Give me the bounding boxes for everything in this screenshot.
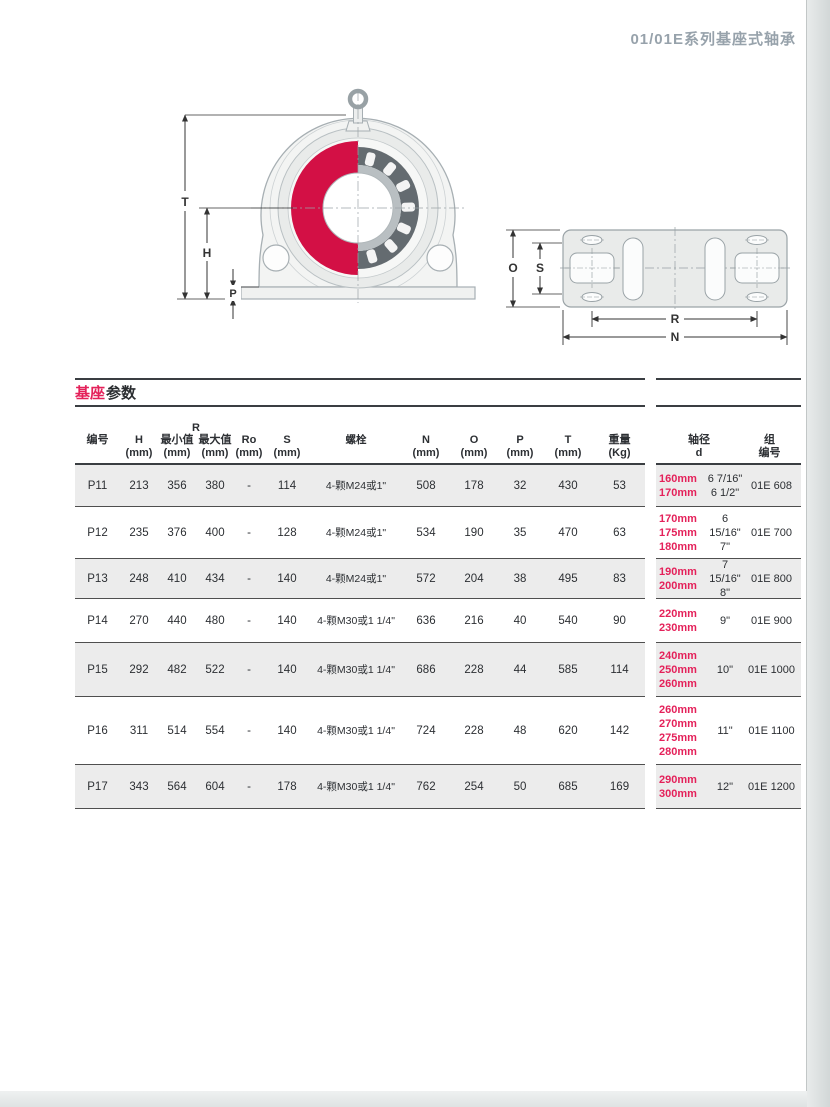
col-bolt: 螺栓 <box>346 434 367 447</box>
shaft-row: 240mm 250mm 260mm 10" 01E 1000 <box>656 643 801 697</box>
table-row: P17 343 564 604 - 178 4-颗M30或1 1/4" 762 … <box>75 765 645 809</box>
dim-label-o: O <box>508 261 517 275</box>
section-title-red: 基座 <box>75 382 105 403</box>
row-id: P15 <box>75 664 120 676</box>
dim-label-p: P <box>229 288 236 300</box>
shaft-row: 260mm 270mm 275mm 280mm 11" 01E 1100 <box>656 697 801 765</box>
row-id: P16 <box>75 725 120 737</box>
table-row: P14 270 440 480 - 140 4-颗M30或1 1/4" 636 … <box>75 599 645 643</box>
shaft-row: 190mm 200mm 7 15/16" 8" 01E 800 <box>656 559 801 599</box>
shaft-mm: 220mm 230mm <box>656 607 706 635</box>
shaft-inch: 10" <box>706 663 744 677</box>
shaft-diameter-table: 轴径 d 组 编号 160mm 170mm 6 7/16" 6 1/2" 01E… <box>656 378 801 809</box>
middle-slot-right <box>705 238 725 300</box>
col-r: R <box>192 422 200 434</box>
shaft-inch: 6 15/16" 7" <box>706 512 744 554</box>
col-ro: Ro <box>242 434 257 447</box>
spacer-band <box>656 380 801 405</box>
table-header-row: 编号 H(mm) R 最小值(mm) 最大值(mm) Ro(mm) S(mm) … <box>75 407 645 465</box>
col-r-group: R 最小值(mm) 最大值(mm) <box>158 422 234 460</box>
col-shaft-diameter: 轴径 <box>688 434 710 447</box>
shaft-mm: 240mm 250mm 260mm <box>656 649 706 691</box>
shaft-mm: 260mm 270mm 275mm 280mm <box>656 703 706 759</box>
catalog-page: 01/01E系列基座式轴承 <box>0 0 830 1107</box>
shaft-inch: 11" <box>706 724 744 738</box>
col-weight: 重量 <box>609 434 631 447</box>
shaft-mm: 190mm 200mm <box>656 565 706 593</box>
col-group-number: 组 <box>764 434 775 447</box>
shaft-mm: 290mm 300mm <box>656 773 706 801</box>
shaft-row: 170mm 175mm 180mm 6 15/16" 7" 01E 700 <box>656 507 801 559</box>
middle-slot-left <box>623 238 643 300</box>
dim-label-h: H <box>203 246 212 260</box>
shaft-row: 220mm 230mm 9" 01E 900 <box>656 599 801 643</box>
row-id: P14 <box>75 615 120 627</box>
shaft-mm: 170mm 175mm 180mm <box>656 512 706 554</box>
col-id: 编号 <box>87 434 109 447</box>
group-number: 01E 1000 <box>744 663 799 677</box>
page-edge-bottom <box>0 1091 807 1107</box>
mounting-hole-left <box>263 245 289 271</box>
col-r-min: 最小值 <box>161 434 194 447</box>
table-row: P11 213 356 380 - 114 4-颗M24或1" 508 178 … <box>75 465 645 507</box>
col-s: S <box>283 434 290 447</box>
shaft-table-header: 轴径 d 组 编号 <box>656 407 801 465</box>
mounting-hole-right <box>427 245 453 271</box>
shaft-row: 160mm 170mm 6 7/16" 6 1/2" 01E 608 <box>656 465 801 507</box>
shaft-inch: 9" <box>706 614 744 628</box>
group-number: 01E 800 <box>744 572 799 586</box>
col-h: H <box>135 434 143 447</box>
group-number: 01E 608 <box>744 479 799 493</box>
table-row: P15 292 482 522 - 140 4-颗M30或1 1/4" 686 … <box>75 643 645 697</box>
row-id: P11 <box>75 480 120 492</box>
shaft-inch: 6 7/16" 6 1/2" <box>706 472 744 500</box>
dim-label-r: R <box>671 312 680 326</box>
shaft-inch: 12" <box>706 780 744 794</box>
group-number: 01E 700 <box>744 526 799 540</box>
page-title: 01/01E系列基座式轴承 <box>630 28 796 49</box>
row-id: P13 <box>75 573 120 585</box>
dim-label-s: S <box>536 261 544 275</box>
group-number: 01E 900 <box>744 614 799 628</box>
base-plate-drawing: O S R N <box>500 210 830 350</box>
bearing-front-view-drawing: T H P <box>163 85 493 335</box>
col-n: N <box>422 434 430 447</box>
row-id: P12 <box>75 527 120 539</box>
shaft-inch: 7 15/16" 8" <box>706 558 744 600</box>
col-p: P <box>516 434 523 447</box>
base-parameter-table: 基座 参数 编号 H(mm) R 最小值(mm) 最大值(mm) Ro(mm) … <box>75 378 645 809</box>
section-title-dark: 参数 <box>106 382 136 403</box>
col-r-max: 最大值 <box>199 434 232 447</box>
dim-label-t: T <box>181 195 189 209</box>
table-row: P16 311 514 554 - 140 4-颗M30或1 1/4" 724 … <box>75 697 645 765</box>
col-o: O <box>470 434 479 447</box>
group-number: 01E 1100 <box>744 724 799 738</box>
dim-label-n: N <box>671 330 680 344</box>
shaft-mm: 160mm 170mm <box>656 472 706 500</box>
parameter-tables: 基座 参数 编号 H(mm) R 最小值(mm) 最大值(mm) Ro(mm) … <box>75 378 801 809</box>
group-number: 01E 1200 <box>744 780 799 794</box>
row-id: P17 <box>75 781 120 793</box>
shaft-row: 290mm 300mm 12" 01E 1200 <box>656 765 801 809</box>
section-title: 基座 参数 <box>75 380 645 405</box>
table-row: P13 248 410 434 - 140 4-颗M24或1" 572 204 … <box>75 559 645 599</box>
col-t: T <box>565 434 572 447</box>
table-row: P12 235 376 400 - 128 4-颗M24或1" 534 190 … <box>75 507 645 559</box>
page-edge-right <box>806 0 830 1107</box>
